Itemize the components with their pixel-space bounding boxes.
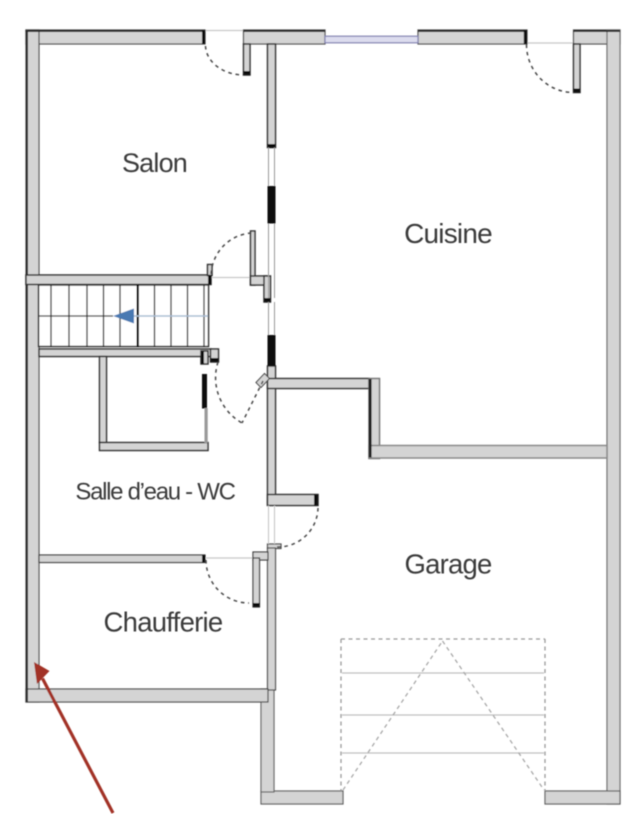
svg-text:Garage: Garage [405, 549, 492, 580]
svg-text:Salon: Salon [122, 148, 187, 178]
svg-text:Chaufferie: Chaufferie [104, 607, 223, 638]
svg-text:Cuisine: Cuisine [404, 218, 492, 249]
svg-text:Salle d’eau - WC: Salle d’eau - WC [75, 479, 235, 506]
